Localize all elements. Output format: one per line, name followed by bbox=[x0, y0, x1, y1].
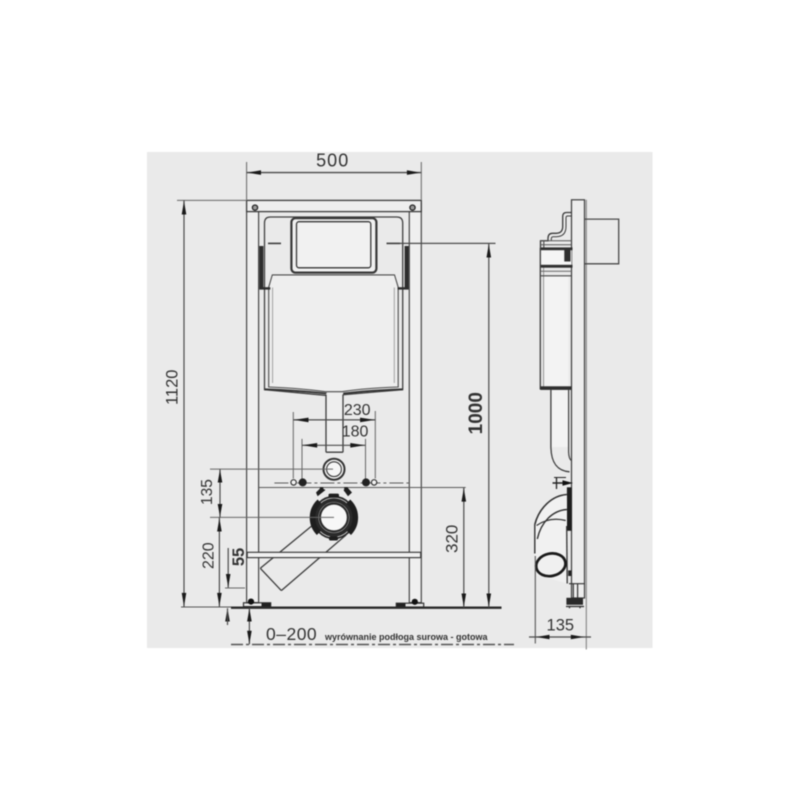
svg-text:135: 135 bbox=[199, 479, 216, 505]
svg-text:220: 220 bbox=[201, 542, 218, 569]
svg-text:500: 500 bbox=[316, 150, 349, 170]
svg-text:0–200: 0–200 bbox=[266, 624, 317, 644]
svg-text:wyrównanie podłoga surowa - go: wyrównanie podłoga surowa - gotowa bbox=[324, 632, 489, 642]
svg-text:1120: 1120 bbox=[163, 370, 181, 405]
svg-text:320: 320 bbox=[443, 525, 462, 553]
svg-text:55: 55 bbox=[230, 548, 248, 566]
svg-text:1000: 1000 bbox=[466, 392, 487, 434]
svg-text:135: 135 bbox=[547, 617, 575, 635]
svg-text:180: 180 bbox=[342, 423, 369, 440]
svg-text:230: 230 bbox=[344, 402, 371, 419]
